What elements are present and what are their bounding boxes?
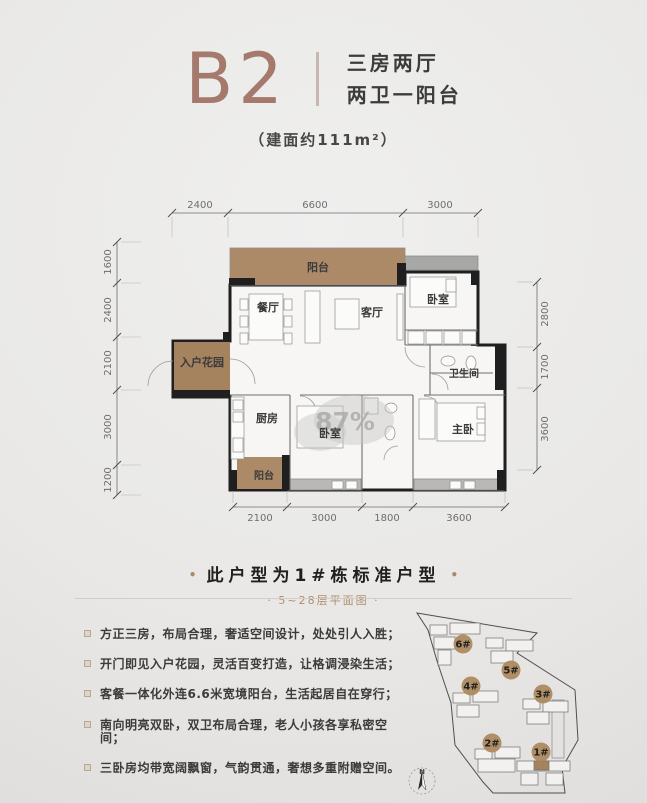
area-note: （建面约111m²） — [0, 129, 647, 150]
room-label: 卧室 — [319, 426, 341, 440]
plan-type-line1: 三房两厅 — [347, 47, 462, 79]
dimension-label: 1600 — [103, 249, 114, 274]
feature-text: 客餐一体化外连6.6米宽境阳台，生活起居自在穿行； — [100, 688, 398, 701]
square-bullet-icon — [84, 721, 91, 728]
furniture — [240, 316, 248, 327]
room-label: 入户花园 — [180, 355, 224, 369]
square-bullet-icon — [84, 630, 91, 637]
building-block — [478, 759, 515, 772]
entry-garden — [174, 342, 230, 397]
furniture — [408, 331, 424, 344]
dimension-label: 6600 — [302, 200, 327, 211]
furniture — [284, 316, 292, 327]
building-badge-label: 6# — [455, 640, 470, 651]
square-bullet-icon — [84, 690, 91, 697]
dimension-label: 2100 — [103, 350, 114, 375]
furniture — [305, 291, 320, 343]
room-label: 客厅 — [360, 305, 383, 319]
floor-plan-drawing: 87%阳台餐厅客厅卧室入户花园卫生间厨房卧室阳台主卧24006600300021… — [0, 195, 647, 567]
caption-dot-left-icon: • — [189, 568, 197, 582]
furniture — [284, 333, 292, 344]
highlighted-unit — [534, 761, 549, 770]
building-badge-label: 5# — [503, 666, 518, 677]
dimension-label: 2400 — [187, 200, 212, 211]
fixture — [466, 356, 476, 370]
plan-header: B2 三房两厅 两卫一阳台 （建面约111m²） — [0, 44, 647, 150]
building-block — [546, 773, 563, 785]
square-bullet-icon — [84, 660, 91, 667]
furniture — [464, 481, 475, 489]
furniture — [426, 331, 442, 344]
feature-item: 开门即见入户花园，灵活百变打造，让格调浸染生活； — [84, 658, 412, 671]
dimension-label: 2800 — [540, 301, 551, 326]
furniture — [240, 299, 248, 310]
furniture — [419, 399, 435, 439]
furniture — [462, 331, 476, 344]
feature-text: 开门即见入户花园，灵活百变打造，让格调浸染生活； — [100, 658, 400, 671]
title-divider — [316, 52, 319, 106]
room-label: 餐厅 — [256, 300, 279, 314]
building-badge-label: 1# — [533, 748, 548, 759]
wall-block — [229, 470, 237, 490]
dimension-label: 1700 — [540, 354, 551, 379]
feature-item: 三卧房均带宽阔飘窗，气韵贯通，奢想多重附赠空间。 — [84, 762, 412, 775]
room-label: 卫生间 — [449, 367, 479, 380]
wall-block — [495, 345, 505, 390]
plan-code: B2 — [185, 44, 288, 114]
dimension-label: 3600 — [540, 416, 551, 441]
site-map: 6#5#4#3#2#1#N — [396, 600, 646, 803]
wall-block — [497, 470, 505, 490]
building-badge-label: 2# — [484, 739, 499, 750]
feature-item: 客餐一体化外连6.6米宽境阳台，生活起居自在穿行； — [84, 688, 412, 701]
plan-type-line2: 两卫一阳台 — [347, 79, 462, 111]
dimension-label: 2100 — [247, 513, 272, 524]
building-block — [486, 638, 503, 648]
wall-block — [282, 455, 290, 490]
wall-block — [471, 272, 479, 285]
furniture — [450, 481, 461, 489]
room-label: 阳台 — [254, 469, 274, 482]
fixture — [441, 356, 455, 366]
title-row: B2 三房两厅 两卫一阳台 — [0, 44, 647, 114]
caption-title: •此户型为1#栋标准户型• — [0, 561, 647, 586]
section-divider — [75, 598, 572, 599]
furniture — [477, 423, 485, 435]
building-block — [506, 640, 533, 651]
caption-dot-right-icon: • — [451, 568, 459, 582]
furniture — [335, 299, 359, 329]
furniture — [477, 407, 485, 419]
furniture — [397, 294, 403, 340]
building-block — [430, 625, 447, 635]
square-bullet-icon — [84, 764, 91, 771]
furniture — [233, 438, 243, 452]
building-badge-label: 4# — [463, 682, 478, 693]
caption-title-text: 此户型为1#栋标准户型 — [206, 566, 440, 586]
furniture — [284, 299, 292, 310]
dimension-label: 3600 — [446, 513, 471, 524]
dimension-label: 3000 — [311, 513, 336, 524]
room-label: 卧室 — [427, 292, 449, 306]
furniture — [233, 412, 243, 422]
feature-text: 方正三房，布局合理，奢适空间设计，处处引人入胜； — [100, 628, 400, 641]
feature-item: 南向明亮双卧，双卫布局合理，老人小孩各享私密空间； — [84, 719, 412, 745]
dimension-label: 1800 — [374, 513, 399, 524]
dimension-label: 3000 — [103, 414, 114, 439]
feature-text: 三卧房均带宽阔飘窗，气韵贯通，奢想多重附赠空间。 — [100, 762, 400, 775]
floorplan-brochure-page: B2 三房两厅 两卫一阳台 （建面约111m²） 87%阳台餐厅客厅卧室入户花园… — [0, 0, 647, 803]
dimension-label: 3000 — [427, 200, 452, 211]
wall-block — [223, 332, 231, 342]
building-block — [521, 773, 538, 785]
furniture — [444, 331, 460, 344]
furniture — [332, 481, 343, 489]
feature-text: 南向明亮双卧，双卫布局合理，老人小孩各享私密空间； — [100, 719, 412, 745]
furniture — [346, 481, 357, 489]
room-label: 主卧 — [452, 422, 474, 436]
building-block — [450, 623, 480, 634]
building-block — [434, 637, 455, 649]
building-block — [527, 712, 549, 724]
ac-ledge — [405, 256, 478, 270]
wall-block — [397, 263, 406, 285]
feature-item: 方正三房，布局合理，奢适空间设计，处处引人入胜； — [84, 628, 412, 641]
wall-block — [173, 390, 230, 397]
dimension-label: 1200 — [103, 467, 114, 492]
building-block — [457, 705, 479, 717]
building-badge-label: 3# — [535, 690, 550, 701]
feature-list: 方正三房，布局合理，奢适空间设计，处处引人入胜；开门即见入户花园，灵活百变打造，… — [84, 628, 412, 792]
wall-block — [229, 278, 255, 285]
dimension-label: 2400 — [103, 297, 114, 322]
building-block — [438, 650, 451, 665]
furniture — [240, 333, 248, 344]
room-label: 阳台 — [307, 260, 329, 274]
plan-type: 三房两厅 两卫一阳台 — [347, 47, 462, 111]
furniture — [446, 279, 456, 292]
door-swing — [148, 361, 173, 386]
room-label: 厨房 — [256, 411, 278, 425]
furniture — [233, 400, 243, 410]
